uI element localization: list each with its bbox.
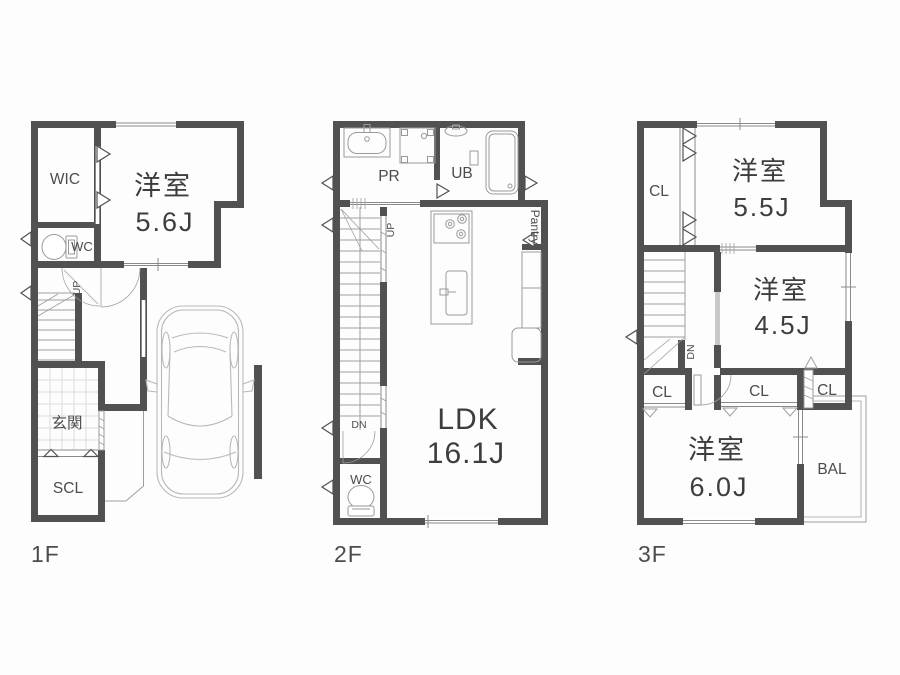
floor-plan-1f: WIC 洋室 5.6J WC UP 玄関 SCL 1F: [21, 121, 262, 567]
entrance-scl-slide-door: [38, 449, 98, 457]
kitchen-sink-icon: [440, 271, 467, 315]
stairs-up-label-2f: UP: [385, 223, 397, 238]
window-vent-icon: [322, 480, 333, 494]
window-vent-icon: [525, 176, 537, 190]
refrigerator-icon: [512, 328, 541, 362]
closet-door-mark-icon: [683, 145, 696, 161]
room-label-entrance: 玄関: [51, 414, 82, 432]
room-label-wc-2f: WC: [350, 472, 372, 487]
closet-door-strip-3f: [680, 128, 695, 245]
stairs-2f: [340, 207, 380, 430]
closet-door-strip-cl3: [804, 357, 817, 408]
window-vent-icon: [626, 330, 637, 344]
window-vent-icon: [21, 232, 31, 246]
stairs-down-label-3f: DN: [685, 344, 697, 359]
room-label-bedroom-1f: 洋室: [134, 171, 192, 201]
room-label-ub: UB: [451, 165, 473, 182]
closet-door-mark-icon: [683, 128, 696, 144]
room-label-cl-c: CL: [749, 383, 769, 400]
balcony-outline: [804, 396, 866, 522]
room-label-pr: PR: [378, 168, 400, 185]
room-size-bedroom-1f: 5.6J: [135, 207, 194, 237]
porch-outline: [105, 411, 144, 501]
entrance-tile-grid: [38, 368, 98, 449]
closet-slide-band-cl1: [643, 404, 685, 418]
window-3f-east: [841, 253, 856, 321]
floorplan-canvas: WIC 洋室 5.6J WC UP 玄関 SCL 1F: [0, 0, 900, 675]
room-label-cl-a: CL: [649, 183, 669, 200]
room-label-bedroom-c: 洋室: [688, 435, 746, 465]
window-3f-north: [697, 118, 775, 130]
room-label-cl-d: CL: [817, 382, 837, 399]
closet-door-mark-icon: [97, 192, 110, 208]
window-3f-south: [683, 518, 755, 525]
kitchen-island: [431, 211, 472, 324]
window-vent-icon: [322, 421, 333, 435]
stairs-up-label-1f: UP: [71, 281, 83, 296]
room-label-wic: WIC: [50, 171, 80, 188]
room-label-bedroom-b: 洋室: [753, 275, 809, 305]
bath-door-mark-icon: [437, 184, 449, 198]
window-vent-icon: [322, 176, 333, 190]
window-1f-top: [116, 121, 176, 128]
room-label-ldk: LDK: [437, 403, 498, 436]
window-1f-bedroom-south: [124, 258, 188, 271]
window-2f-south: [425, 515, 498, 528]
closet-slide-band-cl2: [721, 403, 797, 417]
floor-plan-2f: PR UB Pantry UP DN WC LDK 16.1J 2F: [322, 121, 548, 567]
floor-label-1f: 1F: [31, 541, 60, 567]
carport-side-wall: [254, 365, 262, 479]
window-1f-carport-wall: [141, 300, 146, 357]
window-vent-icon: [322, 218, 333, 232]
bath-sink-icon: [445, 125, 478, 165]
room-label-cl-b: CL: [652, 384, 672, 401]
door-arc-bedroom-1f: [101, 268, 140, 307]
stairs-down-label-2f: DN: [351, 419, 366, 431]
stair-wall-opening-bottom: [379, 386, 388, 428]
floor-label-3f: 3F: [638, 541, 667, 567]
door-opening-6-0j: [692, 368, 720, 375]
car-icon: [146, 306, 254, 498]
room-size-bedroom-b: 4.5J: [754, 310, 811, 340]
window-vent-icon: [21, 286, 31, 300]
bathtub-icon: [486, 131, 518, 194]
window-6-0j-balcony: [793, 410, 808, 464]
room-label-scl: SCL: [53, 480, 84, 497]
vanity-sink-icon: [344, 125, 390, 158]
room-label-bedroom-a: 洋室: [732, 156, 788, 186]
slide-door-4-5j: [715, 292, 720, 345]
room-label-pantry: Pantry: [528, 210, 542, 245]
closet-door-mark-icon: [97, 146, 110, 162]
floorplan-drawing: WIC 洋室 5.6J WC UP 玄関 SCL 1F: [0, 0, 900, 675]
room-size-ldk: 16.1J: [427, 437, 505, 470]
slide-door-4-5j-top: [720, 243, 756, 254]
floor-label-2f: 2F: [334, 541, 363, 567]
stairs-1f: [38, 293, 75, 360]
washing-machine-icon: [400, 128, 435, 163]
closet-door-mark-icon: [683, 212, 696, 228]
toilet-icon: [348, 486, 374, 517]
closet-door-mark-icon: [683, 229, 696, 245]
floor-plan-3f: CL 洋室 5.5J DN 洋室 4.5J CL CL CL 洋室 6.0J B…: [626, 118, 866, 567]
door-arc-6-0j: [694, 375, 731, 405]
pantry-shelves: [522, 252, 541, 328]
entrance-door: [99, 411, 104, 450]
room-size-bedroom-c: 6.0J: [689, 472, 748, 502]
room-label-balcony: BAL: [817, 461, 847, 478]
stove-icon: [434, 214, 469, 243]
room-size-bedroom-a: 5.5J: [733, 192, 790, 222]
room-label-wc-1f: WC: [71, 239, 93, 254]
